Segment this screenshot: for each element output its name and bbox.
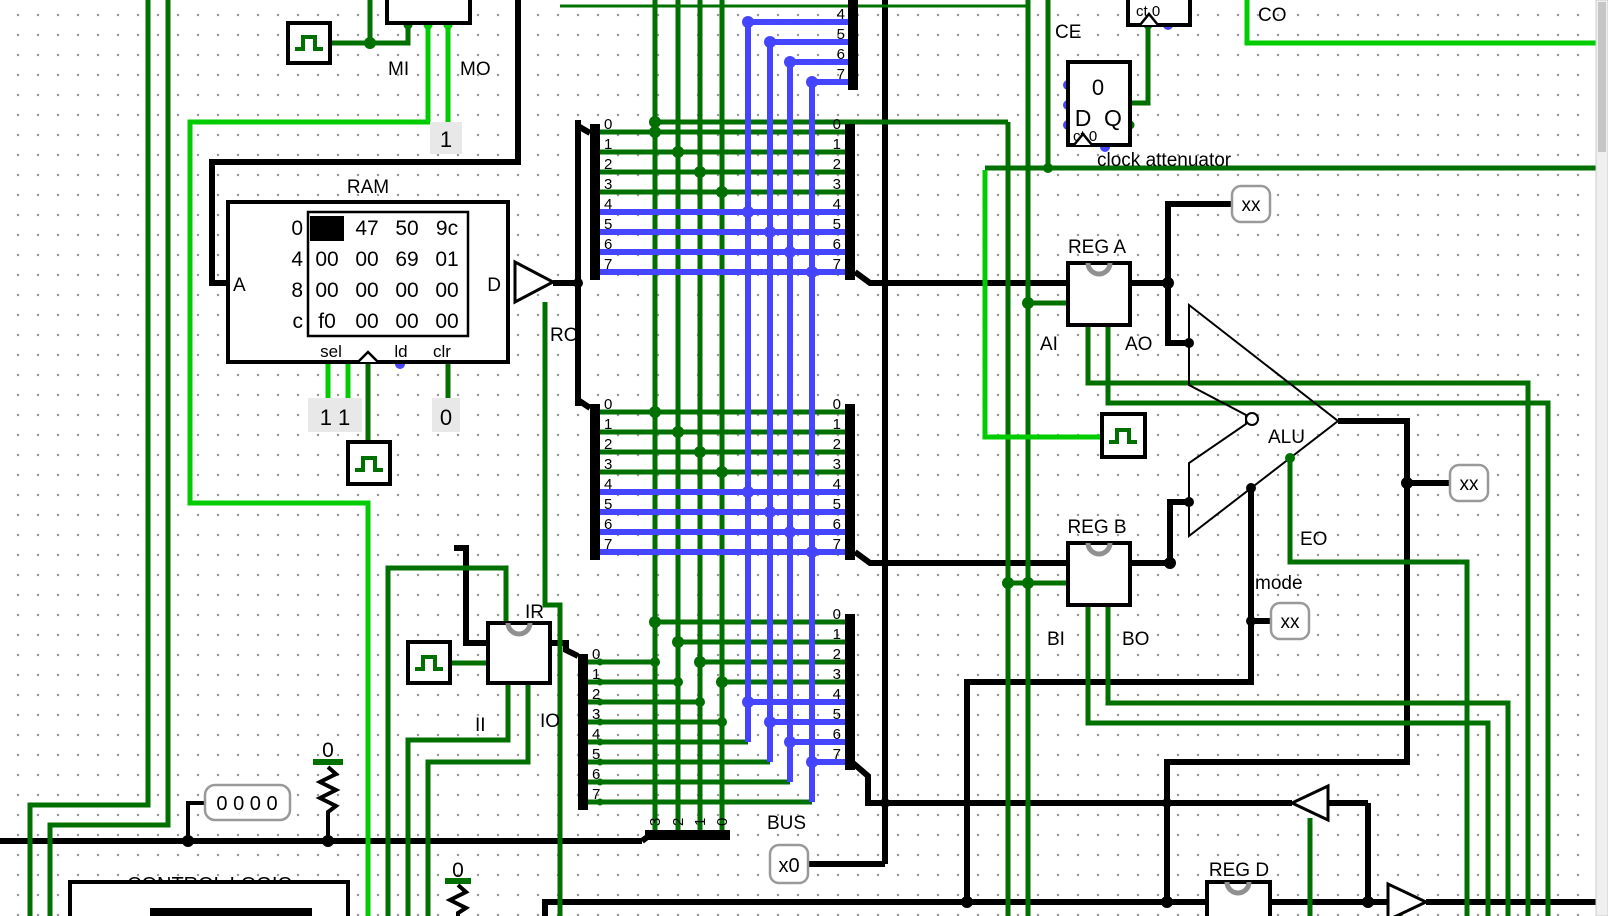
svg-text:01: 01 bbox=[435, 248, 458, 271]
clock-source-alu[interactable] bbox=[1102, 414, 1145, 457]
bus-to-regd-buffer[interactable] bbox=[1292, 786, 1328, 820]
svg-text:36: 36 bbox=[315, 217, 338, 240]
splitter-pin-label: 3 bbox=[833, 176, 841, 193]
splitter-pin-label: 1 bbox=[833, 626, 841, 643]
svg-text:0: 0 bbox=[714, 818, 731, 826]
splitter-pin-label: 4 bbox=[833, 476, 841, 493]
splitter-pin-label: 5 bbox=[833, 216, 841, 233]
scrollbar[interactable] bbox=[1596, 0, 1608, 916]
svg-text:00: 00 bbox=[435, 310, 458, 333]
splitter-pin-label: 0 bbox=[833, 116, 841, 133]
splitter-pin-label: 6 bbox=[604, 236, 612, 253]
probe-reg-a[interactable]: xx bbox=[1232, 186, 1270, 222]
clock-source-ram[interactable] bbox=[348, 442, 390, 484]
ram[interactable]: RAM 0 4 8 c 36 47509c 00006901 00000000 … bbox=[228, 177, 508, 362]
mo-value[interactable]: 1 bbox=[440, 127, 452, 152]
splitter-pin-label: 0 bbox=[833, 606, 841, 623]
probe-mode[interactable]: xx bbox=[1271, 603, 1309, 639]
reg-b-label: REG B bbox=[1067, 517, 1126, 538]
splitter-bars[interactable] bbox=[578, 0, 858, 840]
splitter-pin-label: 4 bbox=[592, 726, 600, 743]
counter-ct0-box[interactable]: ct 0 bbox=[1128, 0, 1190, 25]
probe-control-word[interactable]: 0 0 0 0 bbox=[205, 785, 290, 820]
mo-label: MO bbox=[460, 59, 491, 80]
ram-label: RAM bbox=[347, 177, 389, 198]
ff-value: 0 bbox=[1092, 75, 1104, 100]
probe-value: x0 bbox=[778, 855, 799, 877]
ram-port-d: D bbox=[487, 275, 501, 296]
svg-text:00: 00 bbox=[435, 279, 458, 302]
splitter-pin-label: 7 bbox=[833, 536, 841, 553]
bi-label: BI bbox=[1047, 629, 1065, 650]
io-label: IO bbox=[540, 711, 560, 732]
splitter-pin-label: 2 bbox=[833, 156, 841, 173]
alu-shape bbox=[1189, 305, 1338, 536]
bo-label: BO bbox=[1122, 629, 1149, 650]
ii-label: II bbox=[475, 715, 486, 736]
nibble-splitter-pins: 3 2 1 0 bbox=[647, 818, 731, 826]
mar-register-box[interactable] bbox=[387, 0, 470, 23]
svg-text:00: 00 bbox=[395, 279, 418, 302]
reg-a[interactable] bbox=[1068, 263, 1130, 325]
probe-alu-out[interactable]: xx bbox=[1450, 465, 1488, 501]
ir-register[interactable] bbox=[488, 623, 550, 683]
splitter-pin-label: 2 bbox=[833, 646, 841, 663]
splitter-pin-label: 3 bbox=[833, 456, 841, 473]
svg-text:69: 69 bbox=[395, 248, 418, 271]
splitter-pin-label: 6 bbox=[833, 236, 841, 253]
reg-d[interactable] bbox=[1207, 882, 1270, 916]
splitter-pin-label: 0 bbox=[833, 396, 841, 413]
bus-label: BUS bbox=[767, 813, 806, 834]
splitter-pin-label: 7 bbox=[592, 786, 600, 803]
probe-bus-x0[interactable]: x0 bbox=[770, 845, 808, 883]
svg-text:0: 0 bbox=[291, 217, 303, 240]
splitter-pin-label: 2 bbox=[604, 436, 612, 453]
splitter-pin-label: 3 bbox=[592, 706, 600, 723]
wires-bright-green bbox=[190, 0, 1608, 916]
splitter-pin-label: 5 bbox=[604, 216, 612, 233]
splitter-pin-label: 4 bbox=[833, 196, 841, 213]
alu-label: ALU bbox=[1268, 427, 1305, 448]
svg-text:50: 50 bbox=[395, 217, 418, 240]
scrollbar-thumb[interactable] bbox=[1598, 2, 1606, 152]
bus-wires-black bbox=[0, 0, 1608, 916]
splitter-pin-label: 5 bbox=[604, 496, 612, 513]
svg-text:00: 00 bbox=[355, 279, 378, 302]
ai-label: AI bbox=[1040, 334, 1058, 355]
ao-label: AO bbox=[1125, 334, 1152, 355]
splitter-pin-label: 3 bbox=[604, 456, 612, 473]
splitter-pin-label: 1 bbox=[604, 416, 612, 433]
splitter-pin-label: 7 bbox=[604, 536, 612, 553]
svg-text:00: 00 bbox=[315, 279, 338, 302]
splitter-pin-label: 7 bbox=[833, 256, 841, 273]
splitter-pin-label: 6 bbox=[592, 766, 600, 783]
alu[interactable] bbox=[1189, 305, 1338, 536]
splitter-pin-label: 4 bbox=[837, 6, 845, 23]
svg-text:4: 4 bbox=[291, 248, 303, 271]
splitter-pin-label: 0 bbox=[604, 396, 612, 413]
splitter-pin-label: 2 bbox=[592, 686, 600, 703]
splitter-pin-label: 4 bbox=[833, 686, 841, 703]
splitter-pin-label: 2 bbox=[604, 156, 612, 173]
splitter-pin-label: 2 bbox=[833, 436, 841, 453]
svg-text:00: 00 bbox=[355, 248, 378, 271]
svg-text:1: 1 bbox=[692, 818, 709, 826]
control-logic-inner bbox=[150, 908, 312, 916]
clock-source-ir[interactable] bbox=[408, 642, 450, 683]
splitter-pin-label: 1 bbox=[592, 666, 600, 683]
svg-text:9c: 9c bbox=[436, 217, 458, 240]
splitter-pin-label: 4 bbox=[604, 196, 612, 213]
splitter-pin-label: 7 bbox=[604, 256, 612, 273]
splitter-pin-label: 7 bbox=[833, 746, 841, 763]
splitter-pin-label: 0 bbox=[604, 116, 612, 133]
splitter-pin-label: 1 bbox=[833, 136, 841, 153]
ro-label: RO bbox=[550, 325, 579, 346]
clock-attenuator-label: clock attenuator bbox=[1097, 150, 1232, 171]
co-label: CO bbox=[1258, 5, 1287, 26]
mode-label: mode bbox=[1255, 573, 1303, 594]
wires-dark-green bbox=[30, 0, 1608, 916]
splitter-pin-label: 1 bbox=[833, 416, 841, 433]
eo-pin bbox=[1285, 453, 1295, 463]
pull2-value: 0 bbox=[452, 859, 464, 882]
splitter-pin-label: 1 bbox=[604, 136, 612, 153]
clr-value[interactable]: 0 bbox=[440, 405, 452, 430]
svg-text:3: 3 bbox=[647, 818, 664, 826]
splitter-pin-label: 5 bbox=[833, 706, 841, 723]
splitter-pin-label: 5 bbox=[833, 496, 841, 513]
svg-text:00: 00 bbox=[315, 248, 338, 271]
ro-buffer[interactable] bbox=[515, 262, 553, 302]
svg-text:00: 00 bbox=[395, 310, 418, 333]
ram-port-a: A bbox=[233, 275, 246, 296]
svg-text:sel: sel bbox=[320, 342, 342, 361]
svg-text:c: c bbox=[293, 310, 304, 333]
splitter-pin-label: 3 bbox=[833, 666, 841, 683]
ff-q-port: Q bbox=[1104, 105, 1122, 131]
splitter-pin-label: 5 bbox=[837, 26, 845, 43]
svg-text:8: 8 bbox=[291, 279, 303, 302]
probe-value: 0 0 0 0 bbox=[216, 793, 277, 815]
splitter-pin-label: 6 bbox=[604, 516, 612, 533]
circuit-canvas: MI MO 1 RAM 0 4 8 c 36 47509c 00006901 bbox=[0, 0, 1608, 916]
splitter-pin-label: 5 bbox=[592, 746, 600, 763]
splitter-pin-label: 6 bbox=[833, 516, 841, 533]
svg-text:clr: clr bbox=[433, 342, 451, 361]
reg-a-label: REG A bbox=[1068, 237, 1126, 258]
reg-d-label: REG D bbox=[1209, 860, 1269, 881]
ir-label: IR bbox=[525, 602, 544, 623]
splitter-pin-label: 4 bbox=[604, 476, 612, 493]
splitter-pin-label: 3 bbox=[604, 176, 612, 193]
splitter-pin-label: 6 bbox=[837, 46, 845, 63]
clock-source-mar[interactable] bbox=[288, 23, 330, 63]
probe-value: xx bbox=[1460, 474, 1480, 495]
ce-label: CE bbox=[1055, 22, 1081, 43]
probe-value: xx bbox=[1242, 195, 1262, 216]
junction-dots-blue bbox=[742, 16, 818, 768]
svg-text:2: 2 bbox=[670, 818, 687, 826]
splitter-pin-label: 7 bbox=[837, 66, 845, 83]
pull1-value: 0 bbox=[322, 739, 334, 762]
reg-b[interactable] bbox=[1068, 543, 1130, 605]
sel-value[interactable]: 1 1 bbox=[320, 405, 351, 430]
mi-label: MI bbox=[388, 59, 409, 80]
svg-text:47: 47 bbox=[355, 217, 378, 240]
d-flipflop[interactable]: 0 D Q ct 0 bbox=[1068, 62, 1130, 145]
svg-text:00: 00 bbox=[355, 310, 378, 333]
regd-out-buffer[interactable] bbox=[1388, 884, 1426, 916]
splitter-pin-label: 0 bbox=[592, 646, 600, 663]
svg-text:ld: ld bbox=[394, 342, 407, 361]
svg-text:f0: f0 bbox=[318, 310, 336, 333]
probe-value: xx bbox=[1281, 612, 1301, 633]
eo-label: EO bbox=[1300, 529, 1327, 550]
splitter-pin-label: 6 bbox=[833, 726, 841, 743]
alu-negate-bubble bbox=[1246, 413, 1258, 425]
